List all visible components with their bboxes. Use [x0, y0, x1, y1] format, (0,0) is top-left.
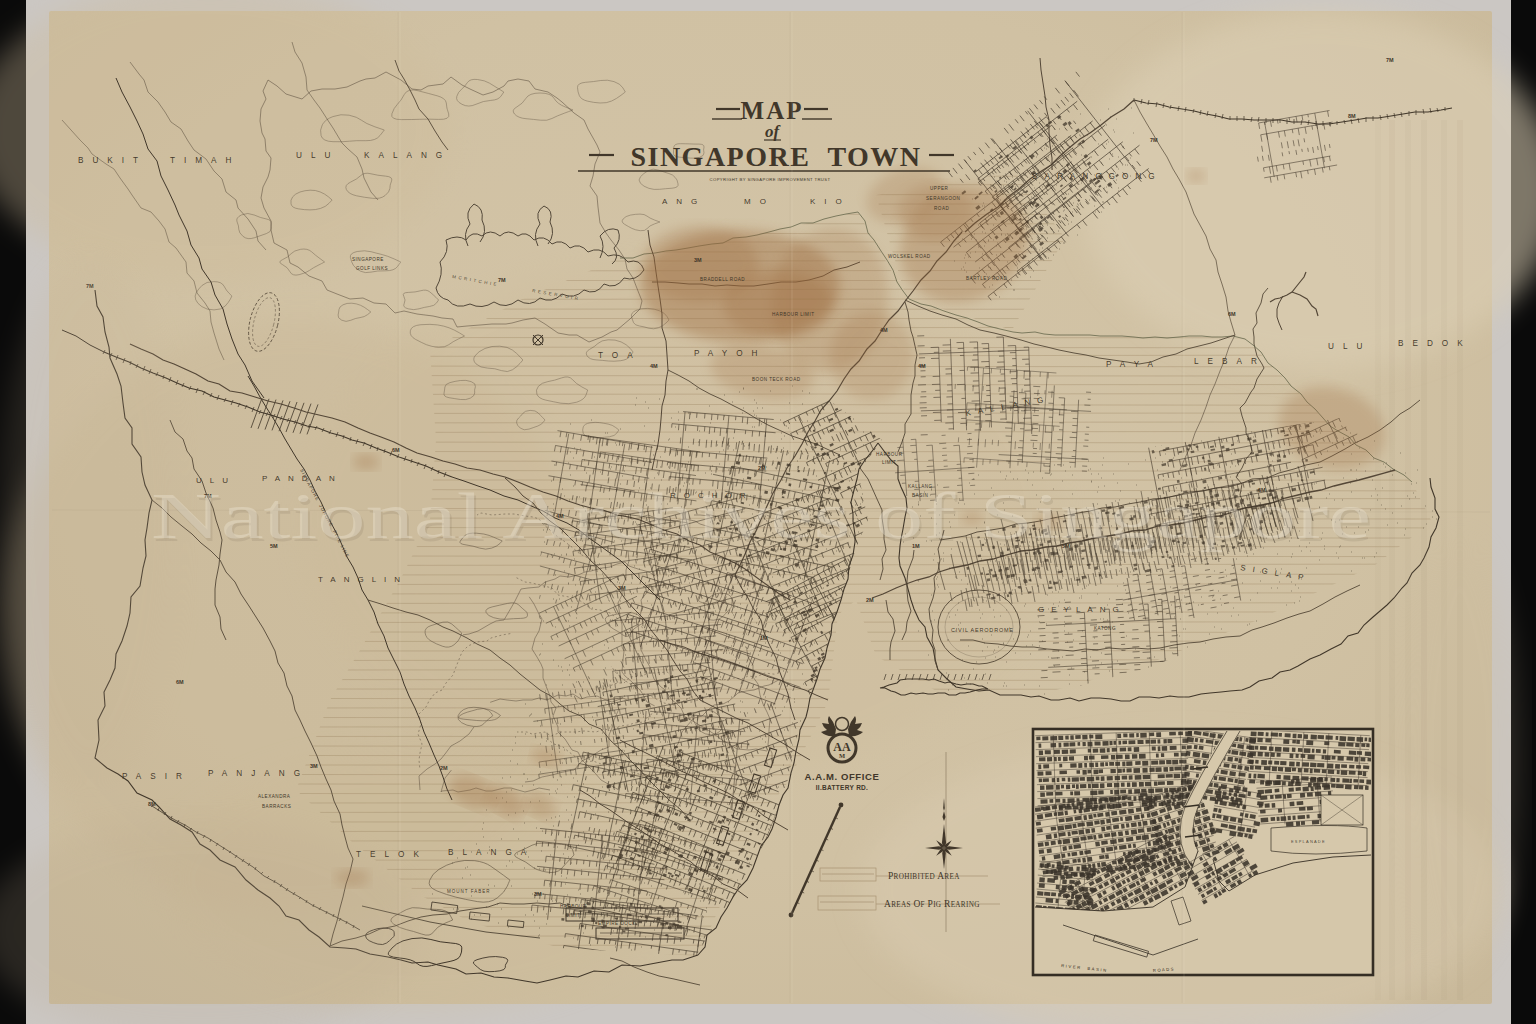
- svg-text:8M: 8M: [148, 801, 156, 807]
- svg-text:SARANGGONG: SARANGGONG: [1032, 172, 1162, 181]
- svg-text:KIO: KIO: [810, 197, 851, 206]
- svg-text:HARBOUR: HARBOUR: [560, 904, 587, 909]
- svg-text:A.A.M. OFFICE: A.A.M. OFFICE: [805, 771, 880, 782]
- svg-text:7M: 7M: [1386, 57, 1394, 63]
- svg-text:PAYA: PAYA: [1106, 360, 1162, 369]
- svg-text:PANJANG: PANJANG: [208, 769, 309, 778]
- svg-text:SINGAPORE TOWN: SINGAPORE TOWN: [630, 141, 921, 172]
- svg-text:SERANGOON: SERANGOON: [926, 196, 960, 201]
- svg-text:LIMIT: LIMIT: [882, 460, 896, 465]
- svg-text:3M: 3M: [534, 891, 542, 897]
- svg-text:HARBOUR: HARBOUR: [876, 452, 903, 457]
- svg-text:EMPIRE DOCK: EMPIRE DOCK: [598, 921, 636, 926]
- svg-text:HARBOUR LIMIT: HARBOUR LIMIT: [772, 312, 815, 317]
- svg-text:MAP: MAP: [741, 97, 804, 124]
- svg-text:7M: 7M: [1150, 137, 1158, 143]
- svg-text:BARTLEY ROAD: BARTLEY ROAD: [966, 276, 1007, 281]
- svg-text:COPYRIGHT BY SINGAPORE IMPROVE: COPYRIGHT BY SINGAPORE IMPROVEMENT TRUST: [710, 177, 831, 182]
- svg-text:ALEXANDRA: ALEXANDRA: [258, 794, 291, 799]
- svg-text:ROAD: ROAD: [934, 206, 949, 211]
- svg-text:ULU: ULU: [1328, 342, 1371, 351]
- svg-text:1M: 1M: [760, 635, 768, 641]
- svg-text:2M: 2M: [866, 597, 874, 603]
- svg-text:BOON TECK ROAD: BOON TECK ROAD: [752, 377, 801, 382]
- svg-text:LIMIT: LIMIT: [566, 913, 580, 918]
- svg-text:2M: 2M: [758, 465, 766, 471]
- svg-text:2M: 2M: [440, 765, 448, 771]
- svg-text:TIMAH: TIMAH: [170, 156, 240, 165]
- svg-text:TANGLIN: TANGLIN: [318, 575, 408, 584]
- svg-text:KATONG: KATONG: [1094, 626, 1116, 631]
- svg-text:ANG: ANG: [662, 197, 706, 206]
- svg-text:II.BATTERY RD.: II.BATTERY RD.: [816, 784, 868, 791]
- svg-text:3M: 3M: [618, 585, 626, 591]
- svg-text:TELOK: TELOK: [356, 850, 428, 859]
- svg-text:SINGAPORE: SINGAPORE: [352, 257, 384, 262]
- svg-text:LEBAR: LEBAR: [1194, 357, 1266, 366]
- svg-text:GEYLANG: GEYLANG: [1038, 605, 1126, 614]
- svg-text:KALANG: KALANG: [364, 151, 451, 160]
- svg-text:PAYOH: PAYOH: [694, 349, 766, 358]
- svg-text:6M: 6M: [392, 447, 400, 453]
- svg-text:BARRACKS: BARRACKS: [262, 804, 291, 809]
- svg-text:4M: 4M: [650, 363, 658, 369]
- svg-text:BRADDELL ROAD: BRADDELL ROAD: [700, 277, 745, 282]
- svg-text:ULU: ULU: [296, 151, 339, 160]
- svg-text:CIVIL AERODROME: CIVIL AERODROME: [951, 627, 1014, 633]
- svg-text:3M: 3M: [310, 763, 318, 769]
- svg-text:PASIR: PASIR: [122, 772, 191, 781]
- svg-text:6M: 6M: [176, 679, 184, 685]
- svg-text:4M: 4M: [880, 327, 888, 333]
- svg-text:4M: 4M: [918, 363, 926, 369]
- svg-text:3M: 3M: [694, 257, 702, 263]
- svg-text:TOA: TOA: [598, 351, 642, 360]
- svg-text:BLANGA: BLANGA: [448, 848, 535, 857]
- svg-text:of: of: [765, 122, 782, 141]
- svg-text:GOLF LINKS: GOLF LINKS: [356, 266, 388, 271]
- svg-text:National Archives of Singapore: National Archives of Singapore: [151, 479, 1371, 552]
- svg-text:BUKIT: BUKIT: [78, 156, 147, 165]
- svg-text:WOLSKEL ROAD: WOLSKEL ROAD: [888, 254, 931, 259]
- svg-text:M: M: [839, 752, 845, 759]
- svg-text:UPPER: UPPER: [930, 186, 949, 191]
- svg-text:MOUNT FABER: MOUNT FABER: [447, 889, 490, 894]
- svg-text:PROHIBITED AREA: PROHIBITED AREA: [888, 871, 960, 881]
- svg-text:6M: 6M: [1228, 311, 1236, 317]
- svg-text:ESPLANADE: ESPLANADE: [1291, 839, 1326, 844]
- svg-text:7M: 7M: [498, 277, 506, 283]
- svg-text:8M: 8M: [1348, 113, 1356, 119]
- svg-text:MO: MO: [744, 197, 775, 206]
- svg-text:AREAS OF PIG REARING: AREAS OF PIG REARING: [884, 899, 980, 909]
